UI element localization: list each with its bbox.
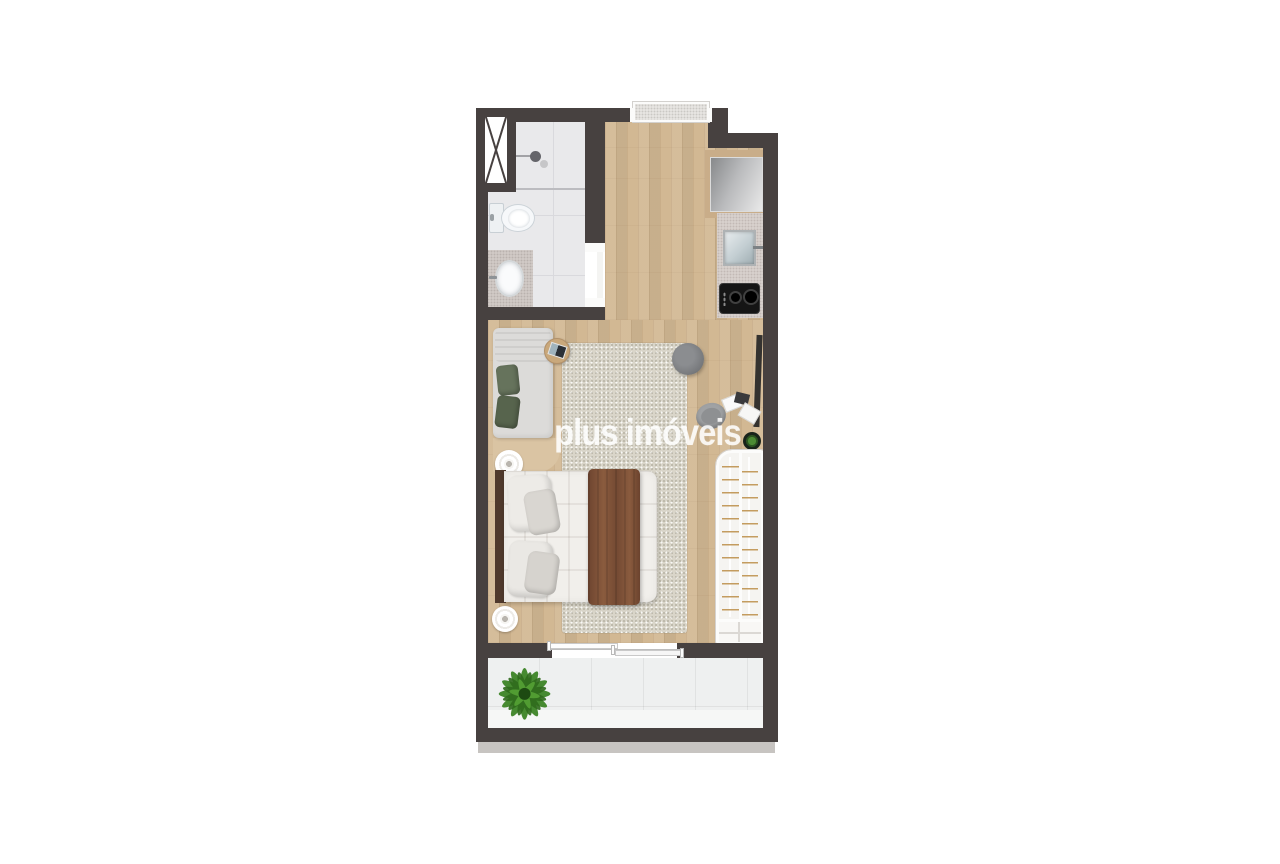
sliding-door-handle xyxy=(611,645,615,655)
laptop-icon xyxy=(547,342,567,360)
wardrobe-shelf xyxy=(719,619,761,642)
entrance-jamb xyxy=(630,108,635,122)
kitchen-sink xyxy=(723,230,756,266)
entrance-door-threshold xyxy=(633,102,709,122)
wall-balcony-left xyxy=(488,643,552,658)
sofa xyxy=(493,328,553,438)
wall-bottom xyxy=(476,728,778,742)
wall-bathroom-bottom xyxy=(476,307,605,320)
floor-plan-render: plus imóveis xyxy=(0,0,1280,864)
cooktop xyxy=(720,284,759,313)
sliding-door-panel xyxy=(615,650,683,656)
wardrobe xyxy=(716,450,764,645)
balcony-outer-ledge xyxy=(478,742,775,753)
sofa-throw xyxy=(495,330,551,362)
sliding-door-handle xyxy=(680,648,684,658)
wall-right xyxy=(763,133,778,742)
bathroom-door-jamb xyxy=(585,298,605,307)
bathroom-door-jamb xyxy=(585,243,605,252)
kitchen-counter xyxy=(717,213,763,318)
toilet-flush-valve xyxy=(490,214,494,221)
burner-left xyxy=(729,291,742,304)
burner-right xyxy=(743,289,759,305)
refrigerator xyxy=(710,157,763,212)
shower-head-shadow xyxy=(540,160,548,168)
brown-throw-blanket xyxy=(588,469,640,605)
round-pouf xyxy=(672,343,704,375)
floor-plan: plus imóveis xyxy=(460,100,794,765)
shower-head-icon xyxy=(530,151,541,162)
shaft-hatch xyxy=(485,117,507,183)
entrance-jamb xyxy=(707,108,712,122)
entry-hall-floor xyxy=(605,122,712,148)
green-pillow xyxy=(495,364,520,396)
watermark: plus imóveis xyxy=(549,410,747,456)
toilet-seat xyxy=(508,209,530,228)
cooktop-knobs xyxy=(723,292,726,306)
balcony-plant xyxy=(484,656,572,730)
wardrobe-divider xyxy=(739,453,742,619)
ventilation-shaft xyxy=(476,108,516,192)
bathroom-door xyxy=(597,250,603,300)
sliding-door-handle xyxy=(547,641,551,651)
shower-glass-partition xyxy=(513,188,585,190)
toilet xyxy=(501,204,535,232)
round-nightstand xyxy=(492,606,518,632)
bathroom-vanity xyxy=(487,250,533,308)
wardrobe-shelf-divider xyxy=(719,632,761,634)
wardrobe-hangers-right xyxy=(741,457,758,617)
wall-balcony-right xyxy=(677,643,763,658)
sliding-door-panel xyxy=(550,643,618,649)
wall-bathroom-partition xyxy=(585,122,605,243)
bed-accent-pillow xyxy=(523,550,561,596)
green-pillow xyxy=(494,395,521,430)
vanity-sink xyxy=(495,260,524,297)
vanity-faucet xyxy=(489,276,497,279)
laptop-side-table xyxy=(544,338,570,364)
wall-left xyxy=(476,108,488,742)
wardrobe-hangers-left xyxy=(722,457,739,617)
